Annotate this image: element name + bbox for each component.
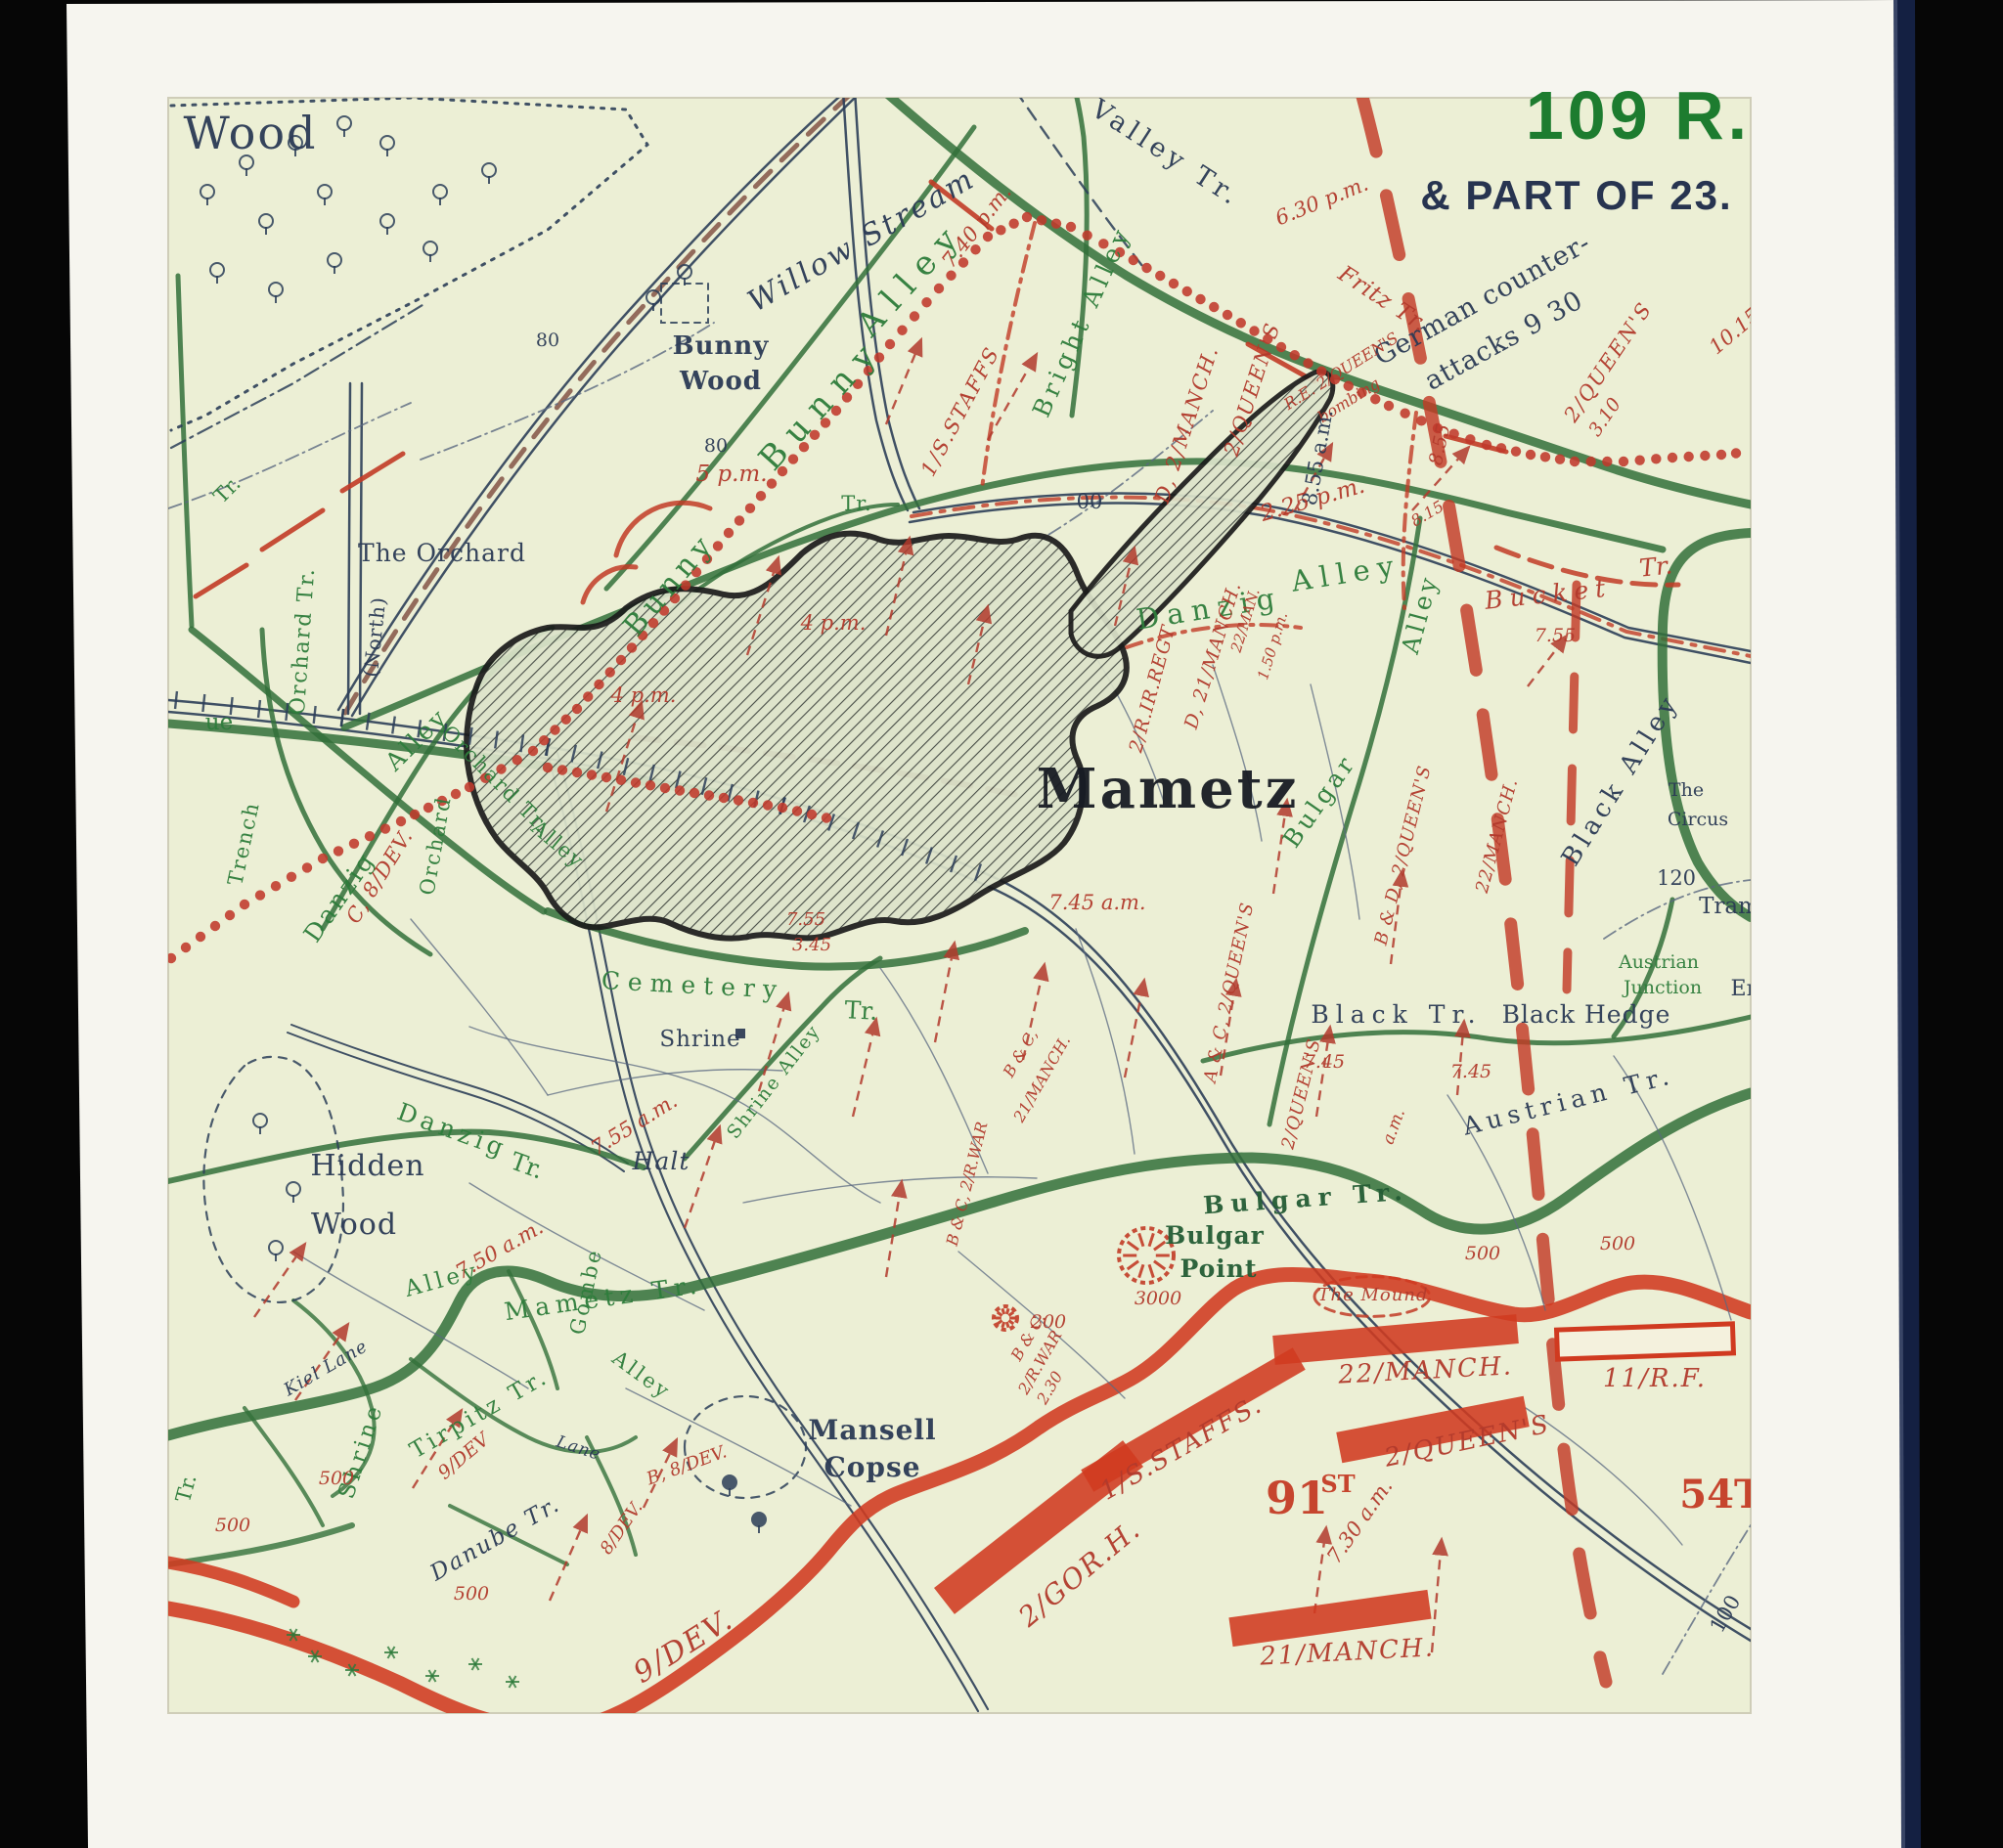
german-front-line-dot: [807, 810, 817, 819]
german-front-line-dot: [601, 772, 611, 782]
german-front-line-dot: [196, 932, 205, 942]
german-front-line-dot: [934, 284, 944, 293]
german-front-line-dot: [181, 943, 191, 952]
german-front-line-dot: [465, 782, 474, 792]
map-label: 500: [454, 1583, 489, 1605]
german-front-line-dot: [210, 921, 220, 931]
german-front-line-dot: [675, 785, 685, 795]
german-front-line-dot: [763, 800, 773, 810]
german-front-line-dot: [1602, 457, 1612, 466]
german-front-line-dot: [734, 515, 744, 525]
german-front-line-dot: [1716, 450, 1726, 460]
german-front-line-dot: [1182, 286, 1192, 296]
map-label: Hidden: [310, 1149, 424, 1183]
german-front-line-dot: [724, 528, 734, 538]
german-front-line-dot: [1585, 457, 1595, 466]
german-front-line-dot: [1290, 350, 1300, 360]
map-label: Austrian: [1618, 951, 1699, 973]
german-front-line-dot: [1195, 294, 1205, 304]
german-front-line-dot: [748, 798, 758, 808]
mine-crater-spoke: [1002, 1322, 1004, 1328]
map-label: Shrine: [659, 1027, 740, 1052]
map-label: 00: [1077, 490, 1103, 513]
german-front-line-dot: [1555, 454, 1565, 463]
german-front-line-dot: [719, 793, 729, 803]
map-label: Bulgar: [1165, 1221, 1265, 1250]
german-front-line-dot: [1683, 452, 1693, 462]
map-label: Circus: [1668, 809, 1728, 830]
german-front-line-dot: [1022, 212, 1032, 222]
german-front-line-dot: [660, 783, 670, 793]
map-label: Tr.: [844, 995, 878, 1026]
map-label: 4 p.m.: [610, 683, 677, 707]
map-label: 7.45: [1450, 1061, 1491, 1082]
map-label: 3.45: [792, 935, 831, 955]
german-front-line-dot: [1129, 255, 1138, 265]
map-label: 5 p.m.: [695, 462, 767, 487]
map-sheet-subtitle: & PART OF 23.: [1420, 172, 1732, 218]
german-front-line-dot: [583, 691, 593, 701]
map-label: The Orchard: [358, 539, 526, 567]
german-front-line-dot: [1634, 455, 1644, 464]
german-front-line-dot: [1037, 215, 1046, 225]
german-front-line-dot: [255, 890, 265, 900]
german-front-line-dot: [380, 823, 390, 833]
map-label: Mansell: [808, 1414, 936, 1446]
german-front-line-dot: [1496, 443, 1506, 453]
map-label: Black Tr.: [1311, 1000, 1482, 1029]
german-front-line-dot: [745, 504, 755, 513]
german-front-line-dot: [1051, 218, 1061, 228]
map-label: 80: [536, 330, 559, 351]
german-front-line-dot: [512, 755, 522, 765]
german-front-line-dot: [318, 854, 328, 863]
german-front-line-dot: [1416, 416, 1426, 425]
map-label: 4 p.m.: [800, 611, 867, 635]
map-label: 7.55: [786, 909, 825, 930]
german-front-line-dot: [543, 763, 553, 772]
german-front-line-dot: [885, 339, 895, 349]
map-label: 500: [1600, 1233, 1635, 1254]
photo-of-trench-map: WoodWillow Stream7.40 p.m.Valley Tr.6.30…: [0, 0, 2003, 1848]
unit-position-bar: [1557, 1324, 1734, 1359]
german-front-line-dot: [778, 803, 787, 813]
map-label: Wood: [184, 107, 318, 159]
german-front-line-dot: [1482, 440, 1491, 450]
map-label: Bunny: [673, 331, 770, 361]
map-label: ue: [205, 710, 233, 735]
map-label: 80: [704, 435, 728, 457]
german-front-line-dot: [396, 816, 406, 826]
german-front-line-dot: [539, 735, 549, 745]
mine-crater-spoke: [1006, 1308, 1008, 1314]
map-label: Tr.: [841, 492, 871, 515]
map-label: Halt: [632, 1147, 690, 1175]
german-front-line-dot: [594, 680, 603, 689]
map-label: Wood: [679, 367, 762, 396]
map-label: Black Hedge: [1502, 1000, 1671, 1029]
german-front-line-dot: [271, 881, 281, 891]
map-label: Tram: [1699, 894, 1759, 919]
map-label: 7.55: [1535, 625, 1576, 646]
german-front-line-dot: [1668, 453, 1677, 462]
map-label: The Mound: [1318, 1285, 1429, 1305]
map-label: 11/R.F.: [1603, 1364, 1707, 1393]
map-label: The: [1669, 779, 1704, 801]
german-front-line-dot: [287, 872, 296, 882]
map-label: 500: [215, 1515, 250, 1536]
map-label: Point: [1180, 1254, 1257, 1283]
german-front-line-dot: [1141, 263, 1151, 273]
german-front-line-dot: [1619, 457, 1628, 466]
german-front-line-dot: [225, 910, 235, 920]
german-front-line-dot: [996, 225, 1005, 235]
map-label: Copse: [823, 1451, 920, 1483]
german-front-line-dot: [410, 810, 420, 819]
german-front-line-dot: [822, 813, 831, 822]
copse-tree-icon: [723, 1475, 736, 1489]
german-front-line-dot: [792, 806, 802, 815]
german-front-line-dot: [1223, 310, 1232, 320]
german-front-line-dot: [767, 478, 777, 488]
german-front-line-dot: [1236, 318, 1246, 328]
german-front-line-dot: [1066, 222, 1076, 232]
map-label: 7.45: [1304, 1051, 1345, 1073]
german-front-line-dot: [704, 790, 714, 800]
german-front-line-dot: [572, 768, 582, 777]
map-sheet-number: 109 R.: [1526, 77, 1751, 154]
german-front-line-dot: [1511, 446, 1521, 456]
german-front-line-dot: [910, 311, 919, 321]
german-front-line-dot: [1700, 451, 1710, 461]
mine-crater-spoke: [1002, 1308, 1004, 1314]
german-front-line-dot: [1008, 218, 1018, 228]
german-front-line-dot: [240, 900, 249, 909]
german-front-line-dot: [587, 770, 597, 779]
map-label: 7.45 a.m.: [1048, 891, 1145, 914]
map-photo-canvas: WoodWillow Stream7.40 p.m.Valley Tr.6.30…: [0, 0, 2003, 1848]
german-front-line-dot: [561, 715, 571, 725]
german-front-line-dot: [690, 788, 699, 798]
map-label: 500: [319, 1468, 354, 1489]
german-front-line-dot: [1570, 457, 1580, 466]
german-front-line-dot: [605, 667, 615, 677]
german-front-line-dot: [557, 765, 567, 774]
german-front-line-dot: [1082, 230, 1091, 240]
german-front-line-dot: [897, 326, 907, 335]
german-front-line-dot: [1400, 408, 1409, 418]
german-front-line-dot: [572, 704, 582, 714]
map-label: Tr.: [1638, 550, 1674, 582]
german-front-line-dot: [1540, 452, 1550, 462]
german-front-line-dot: [550, 725, 559, 734]
german-front-line-dot: [1209, 302, 1219, 312]
copse-tree-icon: [752, 1513, 766, 1526]
map-label: ST: [1320, 1470, 1355, 1498]
map-label: Junction: [1622, 977, 1702, 998]
german-front-line-dot: [1731, 448, 1741, 458]
german-front-line-dot: [645, 780, 655, 790]
german-front-line-dot: [631, 777, 641, 787]
map-label: 91: [1266, 1472, 1328, 1524]
german-front-line-dot: [302, 862, 312, 872]
german-front-line-dot: [334, 846, 343, 856]
map-label: 3000: [1135, 1288, 1181, 1309]
german-front-line-dot: [528, 746, 538, 756]
german-front-line-dot: [1303, 358, 1313, 368]
german-front-line-dot: [1526, 450, 1536, 460]
german-front-line-dot: [616, 655, 626, 665]
map-label: Wood: [311, 1208, 397, 1242]
map-label: 120: [1657, 866, 1696, 890]
german-front-line-dot: [1384, 401, 1394, 411]
map-label: Mametz: [1037, 757, 1300, 821]
map-label: 500: [1465, 1243, 1500, 1264]
german-front-line-dot: [627, 642, 637, 652]
german-front-line-dot: [734, 795, 743, 805]
german-front-line-dot: [451, 789, 461, 799]
german-front-line-dot: [365, 831, 375, 841]
german-front-line-dot: [1465, 434, 1475, 444]
german-front-line-dot: [1169, 279, 1179, 288]
german-front-line-dot: [1155, 271, 1165, 281]
german-front-line-dot: [1651, 454, 1661, 463]
german-front-line-dot: [756, 491, 766, 501]
mine-crater-spoke: [1006, 1322, 1008, 1328]
german-front-line-dot: [921, 297, 931, 307]
